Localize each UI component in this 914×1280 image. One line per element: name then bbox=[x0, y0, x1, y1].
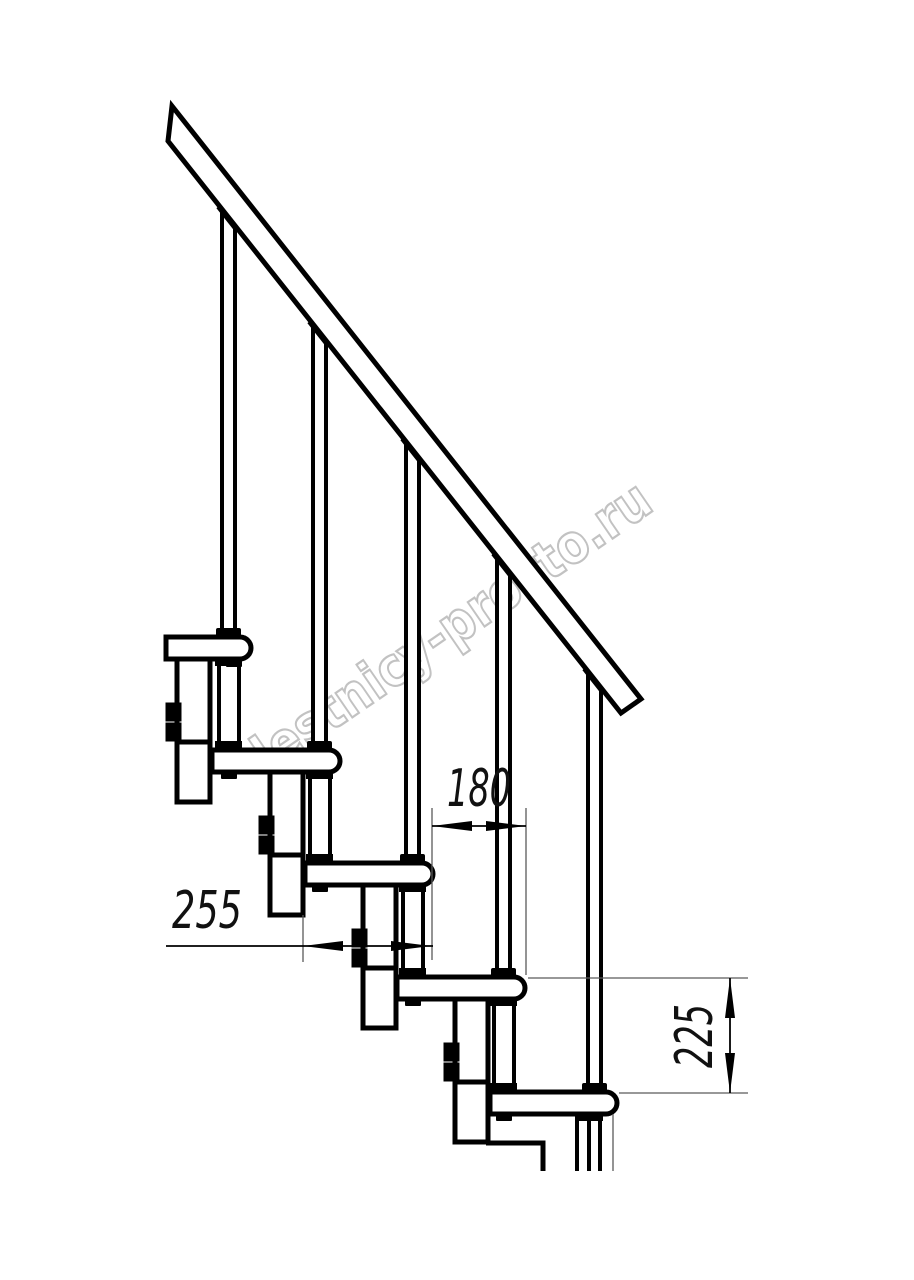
strut-5-partial bbox=[577, 1114, 600, 1171]
arrow-left-icon bbox=[303, 941, 343, 951]
tread-5 bbox=[490, 1092, 617, 1114]
arrow-up-icon bbox=[725, 978, 735, 1018]
column-2 bbox=[261, 770, 303, 915]
column-4 bbox=[446, 997, 488, 1142]
baluster-2 bbox=[313, 329, 326, 744]
strut-1 bbox=[219, 659, 239, 754]
dimension-225: 225 bbox=[528, 978, 748, 1171]
dim-225-label: 225 bbox=[665, 1004, 725, 1068]
tread-2 bbox=[212, 750, 340, 772]
tread-4 bbox=[397, 977, 525, 999]
drawing-canvas: lestnicy-prosto.ru bbox=[0, 0, 914, 1280]
dim-255-label: 255 bbox=[172, 881, 242, 941]
baluster-1 bbox=[222, 214, 235, 631]
column-1 bbox=[168, 657, 210, 802]
staircase-drawing: lestnicy-prosto.ru bbox=[0, 0, 914, 1280]
strut-4 bbox=[494, 999, 514, 1096]
arrow-left-icon bbox=[432, 821, 472, 831]
arrow-down-icon bbox=[725, 1053, 735, 1093]
baluster-5 bbox=[588, 676, 601, 1086]
column-5-partial bbox=[486, 1143, 543, 1171]
baluster-3 bbox=[406, 446, 419, 857]
strut-2 bbox=[310, 772, 330, 867]
dim-180-label: 180 bbox=[447, 759, 511, 819]
tread-1 bbox=[166, 637, 251, 659]
column-3 bbox=[354, 883, 396, 1028]
strut-3 bbox=[403, 885, 423, 981]
tread-3 bbox=[305, 863, 433, 885]
